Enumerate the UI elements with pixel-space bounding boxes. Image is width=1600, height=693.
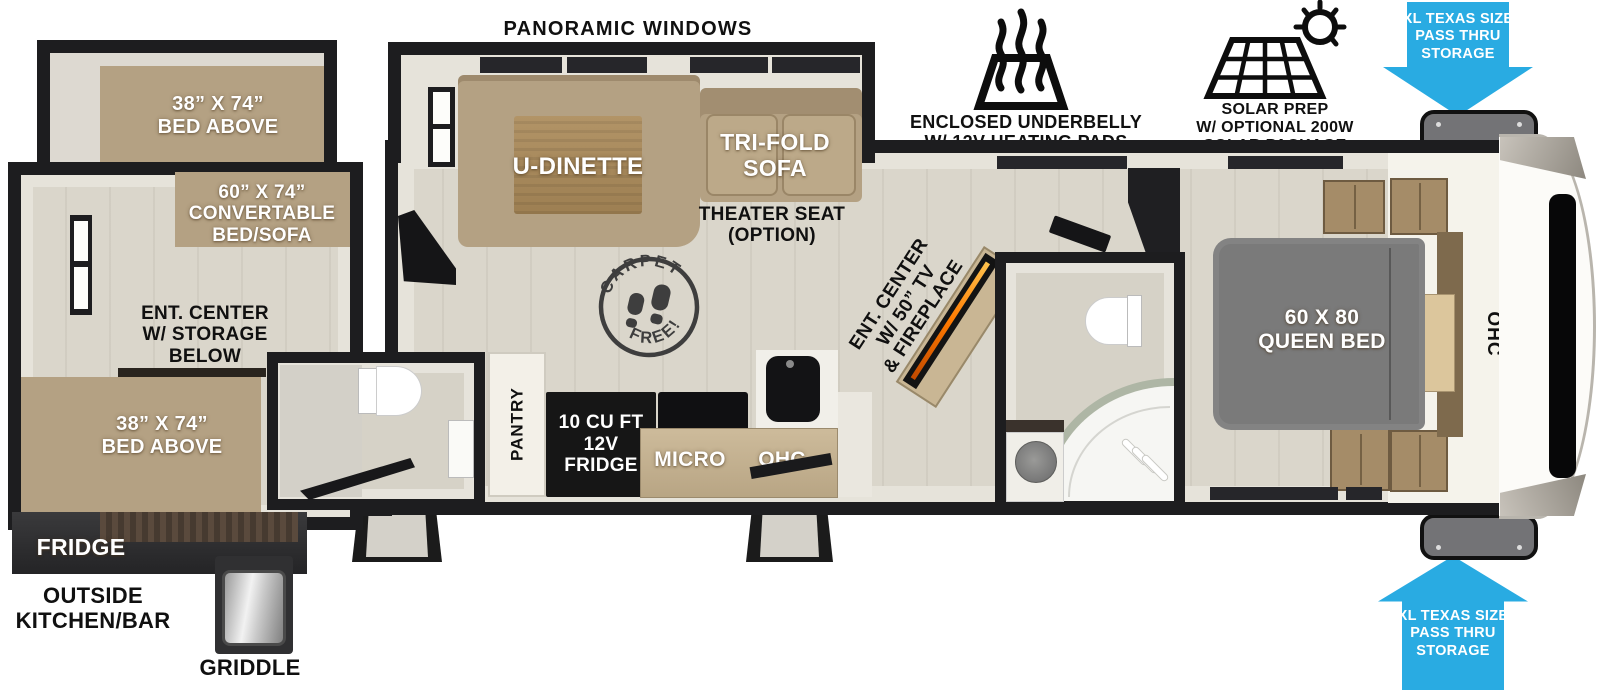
label-line: PASS THRU bbox=[1415, 28, 1500, 45]
panoramic-window-strip bbox=[480, 57, 562, 73]
label-line: PANTRY bbox=[507, 388, 526, 462]
label-line: FRIDGE bbox=[37, 534, 126, 560]
living-side-window bbox=[428, 87, 455, 167]
pass-thru-arrow-top: XL TEXAS SIZE PASS THRU STORAGE bbox=[1383, 2, 1533, 116]
label-line: 38” X 74” bbox=[172, 93, 264, 116]
micro-label: MICRO bbox=[650, 448, 730, 472]
label-line: GRIDDLE bbox=[199, 656, 300, 681]
solar-prep-icon bbox=[1198, 0, 1353, 104]
sink-base bbox=[756, 350, 838, 428]
queen-bed-label: 60 X 80 QUEEN BED bbox=[1232, 304, 1412, 356]
label-line: XL TEXAS SIZE bbox=[1403, 11, 1514, 28]
pass-thru-arrow-bottom: XL TEXAS SIZE PASS THRU STORAGE bbox=[1378, 556, 1528, 690]
u-dinette-label: U-DINETTE bbox=[498, 152, 658, 182]
vanity bbox=[1006, 432, 1064, 502]
label-line: STORAGE bbox=[1421, 46, 1495, 63]
kitchen-end-wall bbox=[838, 392, 872, 497]
toilet-tank bbox=[358, 368, 378, 414]
bedroom-window-strip bbox=[1228, 156, 1343, 169]
vanity-sink bbox=[1015, 441, 1057, 483]
label-line: 60” X 74” bbox=[218, 182, 305, 203]
rear-bedroom-window bbox=[70, 215, 92, 315]
panoramic-window-strip bbox=[690, 57, 768, 73]
label-line: U-DINETTE bbox=[513, 153, 644, 180]
label-line: PASS THRU bbox=[1410, 625, 1495, 642]
label-line: BED/SOFA bbox=[212, 225, 312, 246]
bedroom-wardrobe bbox=[1390, 178, 1448, 235]
griddle-label: GRIDDLE bbox=[190, 654, 310, 682]
half-bath-sink bbox=[448, 420, 474, 478]
convertible-bed-label: 60” X 74” CONVERTABLE BED/SOFA bbox=[167, 183, 357, 245]
entry-step-left bbox=[352, 515, 442, 562]
entry-step-right bbox=[746, 515, 833, 562]
heating-pads-icon bbox=[965, 0, 1077, 112]
front-cap bbox=[1499, 134, 1596, 519]
rv-floorplan: PANORAMIC WINDOWS ENCLOSED UNDERBELLY W/… bbox=[0, 0, 1600, 693]
main-bath-toilet-tank bbox=[1127, 295, 1142, 347]
outside-kitchen-label: OUTSIDE KITCHEN/BAR bbox=[0, 583, 186, 635]
label-line: XL TEXAS SIZE bbox=[1398, 608, 1509, 625]
bedroom-window-strip bbox=[1210, 487, 1338, 500]
hall-window-strip bbox=[997, 156, 1127, 169]
label-line: BELOW bbox=[169, 346, 241, 367]
label-line: SOFA bbox=[743, 155, 807, 181]
label-line: BED ABOVE bbox=[102, 436, 223, 459]
label-line: 10 CU FT bbox=[559, 412, 644, 433]
label-line: BED ABOVE bbox=[158, 116, 279, 139]
label-line: KITCHEN/BAR bbox=[16, 609, 171, 634]
storage-compartment-bottom bbox=[1420, 514, 1538, 560]
bedroom-window-strip bbox=[1346, 487, 1382, 500]
rear-bunk-top-label: 38” X 74” BED ABOVE bbox=[118, 90, 318, 142]
label-line: ENCLOSED UNDERBELLY bbox=[910, 112, 1142, 132]
front-window bbox=[1549, 194, 1576, 478]
panoramic-windows-label: PANORAMIC WINDOWS bbox=[488, 16, 768, 42]
rear-ent-center-cabinet bbox=[118, 368, 266, 377]
panoramic-window-strip bbox=[772, 57, 860, 73]
bedroom-cabinet bbox=[1330, 428, 1390, 491]
tri-fold-sofa-label: TRI-FOLD SOFA bbox=[695, 130, 855, 180]
rear-bunk-bottom-label: 38” X 74” BED ABOVE bbox=[62, 410, 262, 462]
cooktop bbox=[658, 392, 748, 432]
label-line: W/ OPTIONAL 200W bbox=[1196, 119, 1353, 137]
label-line: 60 X 80 bbox=[1285, 306, 1360, 330]
label-line: STORAGE bbox=[1416, 643, 1490, 660]
bedroom-wardrobe bbox=[1390, 430, 1448, 492]
label-line: OUTSIDE bbox=[43, 584, 143, 609]
label-line: ENT. CENTER bbox=[141, 303, 269, 324]
label-line: THEATER SEAT bbox=[699, 204, 845, 225]
label-line: CONVERTABLE bbox=[189, 203, 336, 224]
pantry: PANTRY bbox=[488, 352, 546, 497]
label-line: QUEEN BED bbox=[1258, 330, 1386, 354]
outside-fridge-label: FRIDGE bbox=[16, 534, 146, 560]
griddle bbox=[215, 556, 293, 654]
label-line: 38” X 74” bbox=[116, 413, 208, 436]
label-line: W/ STORAGE bbox=[142, 324, 267, 345]
main-bath-toilet bbox=[1085, 297, 1129, 345]
label-line: SOLAR PREP bbox=[1221, 101, 1328, 119]
panoramic-window-strip bbox=[567, 57, 647, 73]
label-line: FRIDGE bbox=[564, 455, 638, 476]
label-line: 12V bbox=[584, 434, 619, 455]
label-line: TRI-FOLD bbox=[720, 129, 830, 155]
label-line: MICRO bbox=[654, 448, 726, 472]
label-line: PANORAMIC WINDOWS bbox=[504, 18, 753, 41]
bedroom-cabinet bbox=[1323, 180, 1385, 234]
theater-seat-label: THEATER SEAT (OPTION) bbox=[677, 202, 867, 248]
label-line: (OPTION) bbox=[728, 225, 816, 246]
